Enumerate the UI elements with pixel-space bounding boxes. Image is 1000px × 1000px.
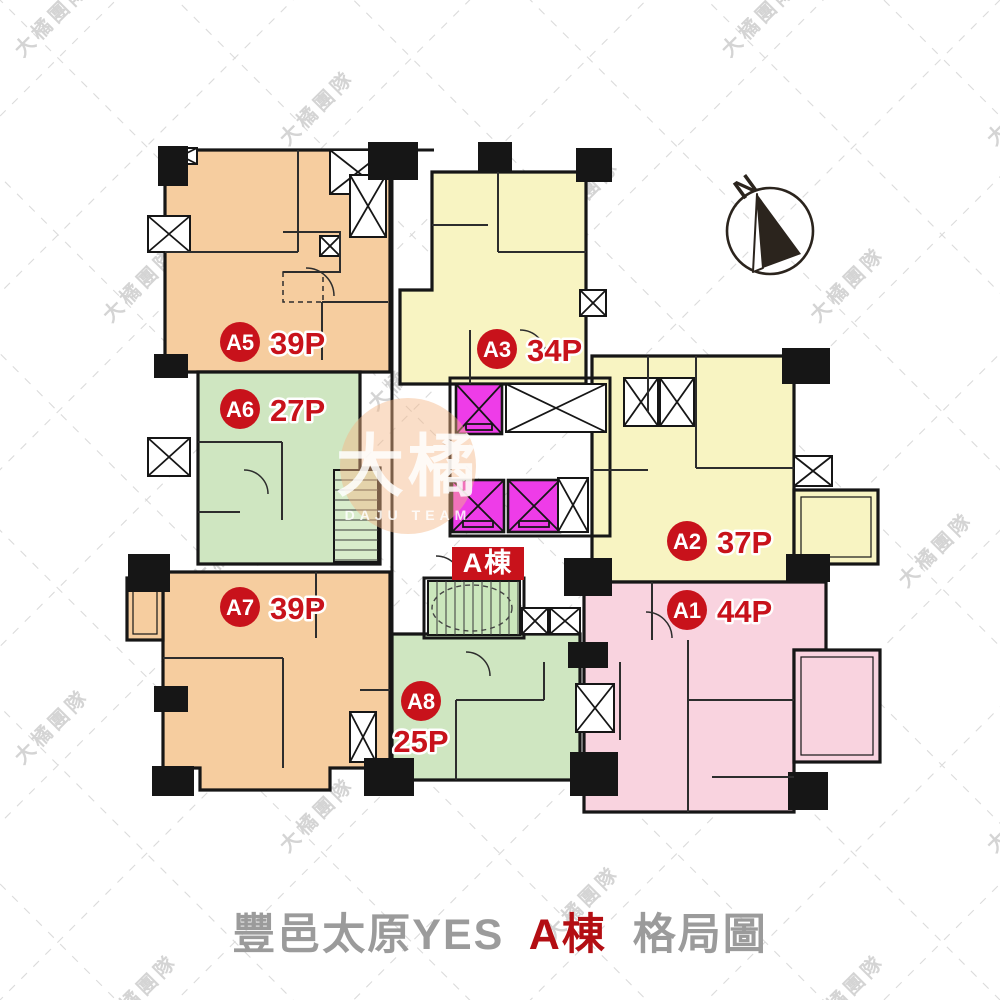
svg-text:大橘團隊: 大橘團隊 [716, 0, 801, 62]
unit-a5-badge: A5 39P [220, 322, 325, 362]
unit-a2-label: A2 [673, 529, 701, 554]
svg-text:大橘團隊: 大橘團隊 [805, 949, 890, 1000]
unit-a1-badge: A1 44P [667, 590, 772, 630]
unit-a8-ping: 25P [393, 724, 448, 759]
title-prefix: 豐邑太原YES [232, 911, 504, 959]
building-badge: A棟 [452, 547, 524, 580]
title-highlight: A棟 [529, 911, 607, 959]
unit-a8-label: A8 [407, 689, 435, 714]
unit-a7-badge: A7 39P [220, 587, 325, 627]
unit-a7-ping: 39P [270, 591, 325, 626]
unit-a3-label: A3 [483, 337, 511, 362]
svg-text:大橘團隊: 大橘團隊 [274, 65, 359, 150]
svg-text:大橘團隊: 大橘團隊 [9, 0, 94, 62]
unit-a3-badge: A3 34P [477, 329, 582, 369]
building-badge-label: A棟 [463, 548, 514, 578]
floor-plan-page: 大橘團隊大橘團隊大橘團隊大橘團隊大橘團隊大橘團隊大橘團隊大橘團隊大橘團隊大橘團隊… [0, 0, 1000, 1000]
page-title: 豐邑太原YES A棟 格局圖 [232, 911, 767, 959]
unit-a6-label: A6 [226, 397, 254, 422]
svg-text:大橘團隊: 大橘團隊 [805, 242, 890, 327]
svg-text:大橘團隊: 大橘團隊 [9, 684, 94, 769]
compass-icon: N [727, 168, 813, 274]
svg-text:大橘團隊: 大橘團隊 [98, 949, 183, 1000]
unit-a5-ping: 39P [270, 326, 325, 361]
unit-a2-ping: 37P [717, 525, 772, 560]
balcony-a2 [794, 490, 878, 564]
unit-a1-label: A1 [673, 598, 701, 623]
svg-text:大橘團隊: 大橘團隊 [982, 65, 1000, 150]
floor-plan-canvas: 大橘團隊大橘團隊大橘團隊大橘團隊大橘團隊大橘團隊大橘團隊大橘團隊大橘團隊大橘團隊… [0, 0, 1000, 1000]
stairs-main [428, 581, 520, 635]
title-suffix: 格局圖 [633, 911, 768, 959]
balcony-a1 [794, 650, 880, 762]
logo-main-text: 大橘 [336, 429, 480, 505]
unit-a6-badge: A6 27P [220, 389, 325, 429]
unit-a1-ping: 44P [717, 594, 772, 629]
svg-text:大橘團隊: 大橘團隊 [893, 507, 978, 592]
unit-a2-badge: A2 37P [667, 521, 772, 561]
unit-a3-ping: 34P [527, 333, 582, 368]
unit-a6-ping: 27P [270, 393, 325, 428]
unit-a7-label: A7 [226, 595, 254, 620]
logo-sub-text: DAJU TEAM [345, 507, 472, 523]
svg-text:大橘團隊: 大橘團隊 [0, 419, 6, 504]
unit-a5-label: A5 [226, 330, 254, 355]
